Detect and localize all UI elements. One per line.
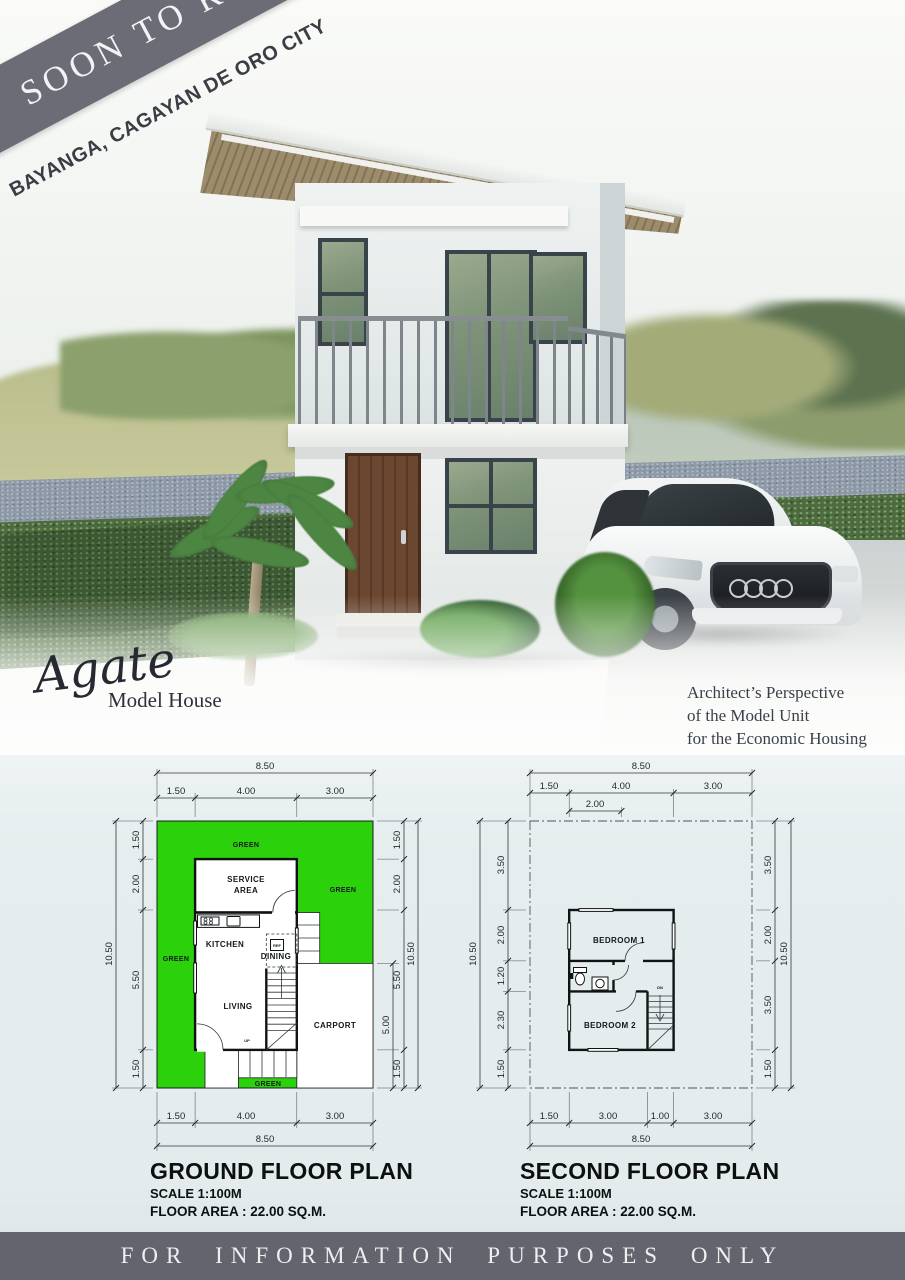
- bedroom2-label: BEDROOM 2: [584, 1021, 636, 1030]
- dim: 2.00: [496, 926, 507, 945]
- dim: 2.00: [131, 875, 142, 894]
- hero-render: SOON TO RISE BAYANGA, CAGAYAN DE ORO CIT…: [0, 0, 905, 755]
- kitchen-sink: [227, 917, 240, 927]
- ground-floor-plan: REF GREEN SERVICE AREA GREEN KITCHEN DIN…: [100, 753, 430, 1158]
- dim: 10.50: [406, 942, 417, 966]
- front-path: [205, 1050, 238, 1088]
- dim: 5.00: [381, 1016, 392, 1035]
- green-left-label: GREEN: [163, 956, 189, 963]
- green-right-label: GREEN: [330, 887, 356, 894]
- door-swing: [614, 965, 629, 980]
- dim: 2.30: [496, 1011, 507, 1030]
- dim: 2.00: [392, 875, 403, 894]
- window-divider: [489, 462, 493, 550]
- toilet-tank: [574, 968, 587, 973]
- dim: 1.50: [392, 1060, 403, 1079]
- front-steps: [238, 1050, 296, 1078]
- kitchen-label: KITCHEN: [206, 940, 244, 949]
- door-opening: [272, 911, 295, 915]
- dim: 4.00: [237, 1111, 256, 1122]
- ground-floor-window: [445, 458, 537, 554]
- roof-beam: [300, 206, 568, 226]
- dn-label: DN: [657, 985, 663, 990]
- ref-label: REF: [273, 943, 282, 948]
- window-mark: [588, 1049, 618, 1052]
- dim: 5.50: [392, 971, 403, 990]
- dim: 3.00: [326, 786, 345, 797]
- balcony-slab: [288, 424, 628, 447]
- dim: 2.00: [763, 926, 774, 945]
- dim: 1.50: [496, 1060, 507, 1079]
- second-plan-scale: SCALE 1:100M: [520, 1186, 779, 1201]
- balcony-railing-side: [568, 326, 626, 437]
- door-swing: [625, 943, 643, 961]
- dim: 8.50: [256, 761, 275, 772]
- dim: 1.50: [167, 1111, 186, 1122]
- dim: 5.50: [131, 971, 142, 990]
- dim: 1.20: [496, 967, 507, 986]
- second-plan-title: SECOND FLOOR PLAN: [520, 1158, 779, 1185]
- dim: 3.50: [496, 856, 507, 875]
- dim: 3.00: [704, 781, 723, 792]
- dim: 10.50: [468, 942, 479, 966]
- dim: 3.00: [704, 1111, 723, 1122]
- svg-text:AREA: AREA: [234, 886, 258, 895]
- carport-label: CARPORT: [314, 1021, 356, 1030]
- flyer-page: SOON TO RISE BAYANGA, CAGAYAN DE ORO CIT…: [0, 0, 905, 1280]
- dim: 1.50: [763, 1060, 774, 1079]
- service-area-label: SERVICE: [227, 875, 265, 884]
- caption-line: for the Economic Housing: [687, 728, 867, 751]
- dim: 10.50: [104, 942, 115, 966]
- dim: 3.00: [599, 1111, 618, 1122]
- second-plan-area: FLOOR AREA : 22.00 SQ.M.: [520, 1204, 779, 1219]
- footer-bar: FOR INFORMATION PURPOSES ONLY: [0, 1232, 905, 1280]
- dim: 3.50: [763, 856, 774, 875]
- window-mark: [194, 963, 197, 993]
- caption-line: Architect’s Perspective: [687, 682, 867, 705]
- car-headlight-right: [832, 566, 858, 582]
- living-label: LIVING: [223, 1002, 252, 1011]
- ground-plan-title: GROUND FLOOR PLAN: [150, 1158, 413, 1185]
- property-line: [530, 821, 752, 1088]
- window-mark: [194, 921, 197, 945]
- second-plan-title-block: SECOND FLOOR PLAN SCALE 1:100M FLOOR ARE…: [520, 1158, 779, 1219]
- ground-plan-title-block: GROUND FLOOR PLAN SCALE 1:100M FLOOR ARE…: [150, 1158, 413, 1219]
- dim: 1.50: [540, 781, 559, 792]
- dim: 1.00: [651, 1111, 670, 1122]
- footer-text: FOR INFORMATION PURPOSES ONLY: [121, 1243, 785, 1269]
- dim: 8.50: [632, 1134, 651, 1145]
- sink: [596, 979, 604, 987]
- model-house-label: Model House: [108, 688, 222, 713]
- dim: 3.00: [326, 1111, 345, 1122]
- tree-line-right: [620, 300, 905, 450]
- floor-plans-section: REF GREEN SERVICE AREA GREEN KITCHEN DIN…: [0, 755, 905, 1232]
- green-bottom-label: GREEN: [255, 1081, 281, 1088]
- bedroom1-label: BEDROOM 1: [593, 936, 645, 945]
- second-floor-plan: DN BEDROOM 1 BEDROOM 2 8.50 1.50 4.00 3.…: [460, 753, 830, 1158]
- dim: 8.50: [632, 761, 651, 772]
- ground-plan-area: FLOOR AREA : 22.00 SQ.M.: [150, 1204, 413, 1219]
- perspective-caption: Architect’s Perspective of the Model Uni…: [687, 682, 867, 751]
- dim: 3.50: [763, 996, 774, 1015]
- dim: 1.50: [131, 1060, 142, 1079]
- dim: 2.00: [586, 799, 605, 810]
- door-handle: [401, 530, 406, 544]
- dim: 1.50: [392, 831, 403, 850]
- window-mark: [568, 1005, 571, 1031]
- window-mark: [568, 923, 571, 949]
- door-opening: [197, 1048, 223, 1052]
- dining-label: DINING: [261, 952, 291, 961]
- caption-line: of the Model Unit: [687, 705, 867, 728]
- dim: 1.50: [167, 786, 186, 797]
- toilet: [576, 973, 585, 985]
- shower-fixture: [570, 973, 574, 979]
- up-label: UP: [244, 1038, 250, 1043]
- window-divider: [322, 292, 364, 296]
- door-swing: [616, 991, 636, 1011]
- dim: 8.50: [256, 1134, 275, 1145]
- window-mark: [672, 923, 675, 949]
- balcony-railing: [298, 316, 568, 437]
- dim: 4.00: [612, 781, 631, 792]
- dim: 1.50: [131, 831, 142, 850]
- green-top-label: GREEN: [233, 842, 259, 849]
- stair-down-arrow: [656, 995, 664, 1021]
- stair-treads: [648, 996, 674, 1029]
- window-mark: [579, 909, 613, 912]
- dim: 10.50: [779, 942, 790, 966]
- dim: 4.00: [237, 786, 256, 797]
- dim: 1.50: [540, 1111, 559, 1122]
- ground-plan-scale: SCALE 1:100M: [150, 1186, 413, 1201]
